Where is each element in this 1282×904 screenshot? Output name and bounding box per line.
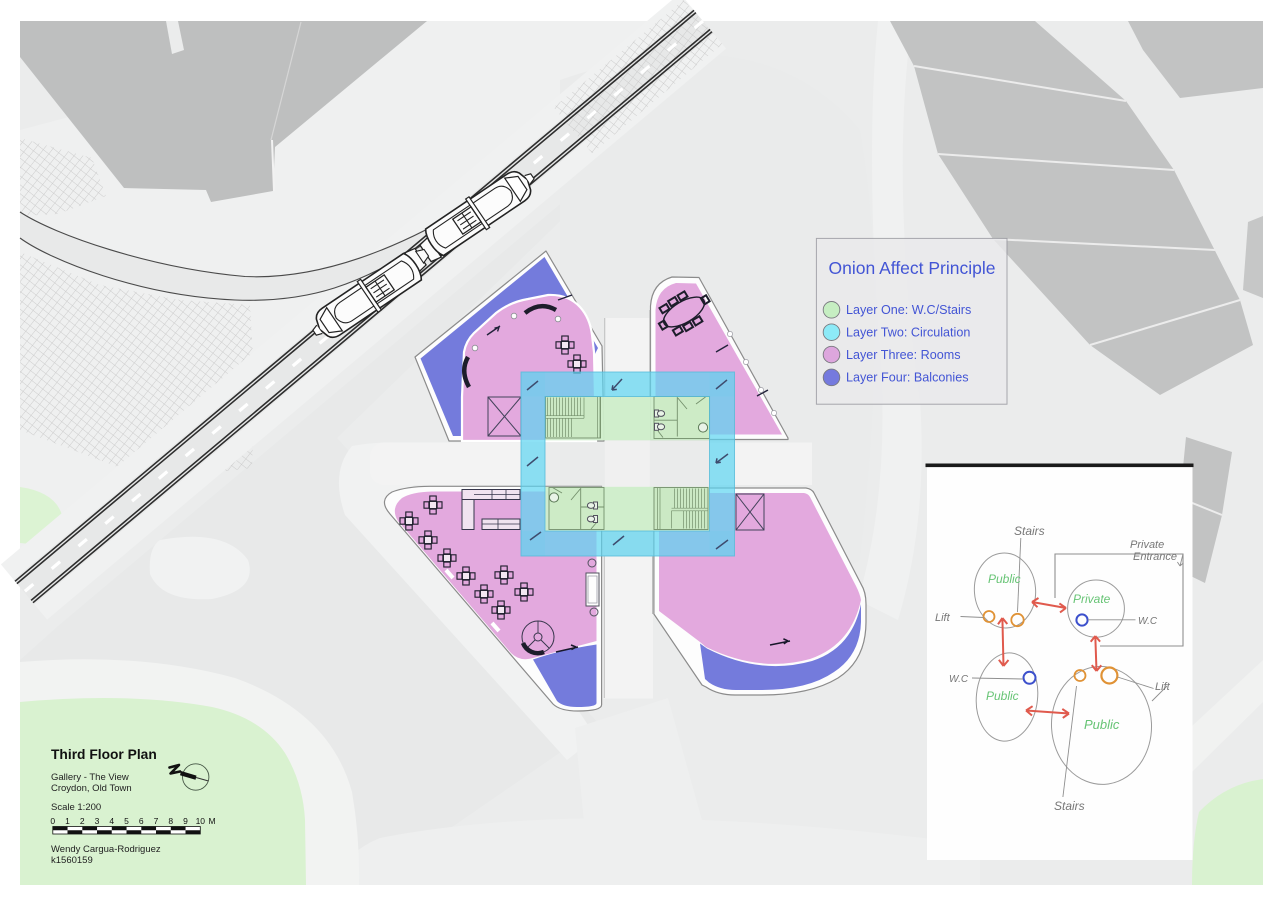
svg-text:Scale 1:200: Scale 1:200 — [51, 802, 101, 813]
svg-text:W.C: W.C — [1138, 616, 1158, 627]
svg-text:Stairs: Stairs — [1014, 524, 1045, 538]
svg-text:M: M — [208, 816, 215, 826]
svg-text:Croydon, Old Town: Croydon, Old Town — [51, 783, 132, 794]
svg-text:3: 3 — [95, 816, 100, 826]
svg-text:Private: Private — [1130, 539, 1164, 551]
svg-text:W.C: W.C — [949, 674, 969, 685]
svg-text:Private: Private — [1073, 592, 1111, 606]
svg-text:Lift: Lift — [1155, 681, 1171, 693]
svg-text:9: 9 — [183, 816, 188, 826]
svg-text:Public: Public — [986, 689, 1019, 703]
svg-text:5: 5 — [124, 816, 129, 826]
svg-text:Public: Public — [1084, 717, 1120, 732]
svg-text:Layer One: W.C/Stairs: Layer One: W.C/Stairs — [846, 303, 971, 317]
svg-text:Stairs: Stairs — [1054, 799, 1085, 813]
svg-text:2: 2 — [80, 816, 85, 826]
svg-text:10: 10 — [196, 816, 206, 826]
svg-text:7: 7 — [154, 816, 159, 826]
svg-text:Layer Four: Balconies: Layer Four: Balconies — [846, 371, 969, 385]
svg-text:k1560159: k1560159 — [51, 855, 93, 866]
svg-text:0: 0 — [50, 816, 55, 826]
svg-text:Gallery - The View: Gallery - The View — [51, 772, 129, 783]
svg-text:Third Floor Plan: Third Floor Plan — [51, 747, 157, 762]
svg-text:4: 4 — [109, 816, 114, 826]
svg-text:Public: Public — [988, 572, 1021, 586]
svg-text:6: 6 — [139, 816, 144, 826]
svg-text:Layer Two: Circulation: Layer Two: Circulation — [846, 325, 970, 339]
svg-text:8: 8 — [168, 816, 173, 826]
svg-text:Layer Three: Rooms: Layer Three: Rooms — [846, 348, 961, 362]
svg-text:Wendy Cargua-Rodriguez: Wendy Cargua-Rodriguez — [51, 844, 161, 855]
svg-text:1: 1 — [65, 816, 70, 826]
svg-text:Lift: Lift — [935, 612, 951, 624]
svg-text:Onion Affect Principle: Onion Affect Principle — [829, 258, 996, 278]
svg-text:Entrance: Entrance — [1133, 551, 1177, 563]
